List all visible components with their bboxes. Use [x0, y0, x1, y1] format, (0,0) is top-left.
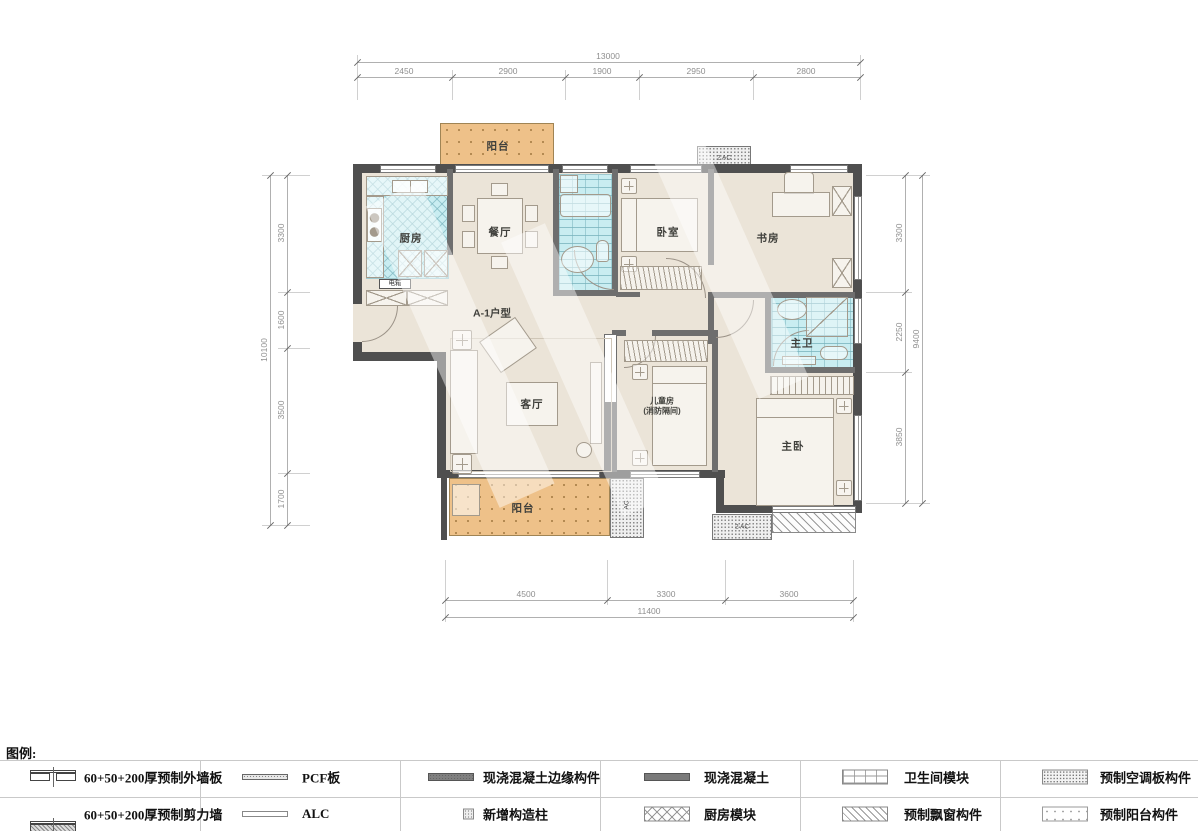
- bathroom-module-symbol-icon: [842, 770, 888, 785]
- master-nightstand-1: [836, 398, 852, 414]
- cast-in-place-concrete-edge-symbol-icon: [428, 773, 474, 781]
- dim-bottom-total: 11400: [637, 606, 660, 616]
- dim-left-seg-4: 1700: [276, 490, 286, 509]
- legend-label-alc: ALC: [302, 806, 329, 822]
- wall-bedroom-bottom-stub: [616, 292, 640, 297]
- window-bathroom: [562, 165, 608, 173]
- floor-plan-page: 电箱 厨房 餐厅 卧室: [0, 0, 1198, 831]
- dim-extension: [445, 560, 446, 622]
- room-label-study: 书房: [757, 231, 780, 246]
- dim-top-seg-2: 2900: [499, 66, 518, 76]
- legend-label-shear-wall: 60+50+200厚预制剪力墙: [84, 805, 222, 824]
- dim-line-bottom-segments: [445, 600, 853, 601]
- living-fan: [576, 442, 592, 458]
- dim-left-seg-3: 3500: [276, 401, 286, 420]
- dim-top-seg-1: 2450: [395, 66, 414, 76]
- room-label-children-2: (消防隔间): [643, 406, 680, 417]
- room-label-balcony-bottom: 阳台: [512, 501, 535, 516]
- unit-type-label: A-1户型: [473, 306, 511, 321]
- dim-top-seg-3: 1900: [593, 66, 612, 76]
- window-study-right: [854, 196, 862, 280]
- dim-line-right-segments: [905, 175, 906, 503]
- entry-cabinet-1: [366, 290, 407, 306]
- room-label-balcony-top: 阳台: [487, 139, 510, 154]
- legend-label-cip-edge: 现浇混凝土边缘构件: [483, 768, 600, 787]
- dining-chair-2: [462, 231, 475, 248]
- dim-right-seg-3: 3850: [894, 428, 904, 447]
- dim-top-seg-5: 2800: [797, 66, 816, 76]
- room-label-master-bedroom: 主卧: [782, 439, 805, 454]
- dim-line-top-segments: [357, 77, 860, 78]
- ac-label-side: AC: [624, 500, 631, 509]
- dim-right-seg-2: 2250: [894, 323, 904, 342]
- wall-balcony-left: [441, 478, 447, 540]
- dim-bottom-seg-2: 3300: [657, 589, 676, 599]
- dim-extension: [853, 560, 854, 622]
- legend-label-cip-concrete: 现浇混凝土: [704, 768, 769, 787]
- cast-in-place-concrete-symbol-icon: [644, 773, 690, 781]
- precast-ac-panel-symbol-icon: [1042, 770, 1088, 785]
- dim-bottom-seg-3: 3600: [780, 589, 799, 599]
- dining-chair-3: [525, 205, 538, 222]
- kitchen-module-symbol-icon: [644, 807, 690, 822]
- pcf-board-symbol-icon: [242, 774, 288, 780]
- wall-children-right: [712, 330, 718, 472]
- bedroom-nightstand-1: [621, 178, 637, 194]
- window-master-right: [854, 415, 862, 501]
- window-balcony-door-top: [455, 165, 549, 173]
- room-label-bedroom: 卧室: [657, 225, 680, 240]
- legend-label-kitchen-module: 厨房模块: [704, 805, 756, 824]
- bathroom-basin: [561, 246, 594, 273]
- precast-bay-window-symbol-icon: [842, 807, 888, 822]
- balcony-washer: [452, 484, 480, 516]
- bathroom-toilet: [596, 240, 609, 262]
- dim-left-seg-1: 3300: [276, 224, 286, 243]
- dining-chair-1: [462, 205, 475, 222]
- new-constructional-column-symbol-icon: [463, 809, 474, 820]
- entry-door-opening: [353, 304, 362, 342]
- dim-top-total: 13000: [596, 51, 620, 61]
- masterbath-toilet: [820, 346, 848, 360]
- dim-extension: [278, 348, 310, 349]
- ac-label-bottom: 2 AC: [735, 524, 749, 531]
- children-wardrobe: [624, 340, 708, 362]
- living-side-table-2: [452, 454, 472, 474]
- precast-balcony-symbol-icon: [1042, 807, 1088, 822]
- study-cabinet-1: [832, 186, 852, 216]
- dining-chair-6: [491, 256, 508, 269]
- dim-top-seg-4: 2950: [687, 66, 706, 76]
- window-master-bay: [772, 506, 856, 513]
- dim-line-left-total: [270, 175, 271, 525]
- window-masterbath-right: [854, 298, 862, 344]
- children-nightstand-1: [632, 364, 648, 380]
- masterbath-shower: [806, 297, 848, 337]
- ac-label-top: 2 AC: [717, 155, 731, 162]
- legend-label-bathroom-module: 卫生间模块: [904, 768, 969, 787]
- master-nightstand-2: [836, 480, 852, 496]
- dim-line-bottom-total: [445, 617, 853, 618]
- bathroom-vanity: [560, 175, 578, 193]
- legend-label-exterior-wall: 60+50+200厚预制外墙板: [84, 768, 222, 787]
- dim-bottom-seg-1: 4500: [517, 589, 536, 599]
- room-label-master-bath: 主卫: [791, 336, 814, 351]
- dim-line-right-total: [922, 175, 923, 503]
- dim-left-seg-2: 1600: [276, 311, 286, 330]
- study-cabinet-2: [832, 258, 852, 288]
- legend-label-new-column: 新增构造柱: [483, 805, 548, 824]
- precast-exterior-wall-panel-symbol-icon: [30, 770, 76, 784]
- precast-shear-wall-symbol-icon: [30, 821, 76, 831]
- window-kitchen: [380, 165, 436, 173]
- dim-extension: [278, 292, 310, 293]
- alc-symbol-icon: [242, 811, 288, 817]
- room-label-living: 客厅: [521, 397, 544, 412]
- study-desk: [772, 192, 830, 217]
- dining-chair-5: [491, 183, 508, 196]
- legend-label-pcf: PCF板: [302, 768, 340, 787]
- room-label-kitchen: 厨房: [400, 231, 423, 246]
- dim-line-top-total: [357, 62, 860, 63]
- room-label-dining: 餐厅: [489, 225, 512, 240]
- legend: 图例: 60+50+200厚预制外墙板 60+50+200厚预制剪力墙 PCF板…: [0, 743, 1198, 831]
- bedroom-wardrobe: [620, 266, 702, 290]
- wall-bottom-connector: [716, 470, 724, 513]
- legend-label-ac-panel: 预制空调板构件: [1100, 768, 1191, 787]
- study-chair: [784, 172, 814, 194]
- dim-extension: [278, 473, 310, 474]
- dim-left-total: 10100: [259, 338, 269, 362]
- bathtub: [560, 194, 611, 217]
- legend-label-balcony: 预制阳台构件: [1100, 805, 1178, 824]
- wall-children-top-b: [652, 330, 718, 336]
- dim-right-total: 9400: [911, 330, 921, 349]
- legend-label-bay-window: 预制飘窗构件: [904, 805, 982, 824]
- dim-right-seg-1: 3300: [894, 224, 904, 243]
